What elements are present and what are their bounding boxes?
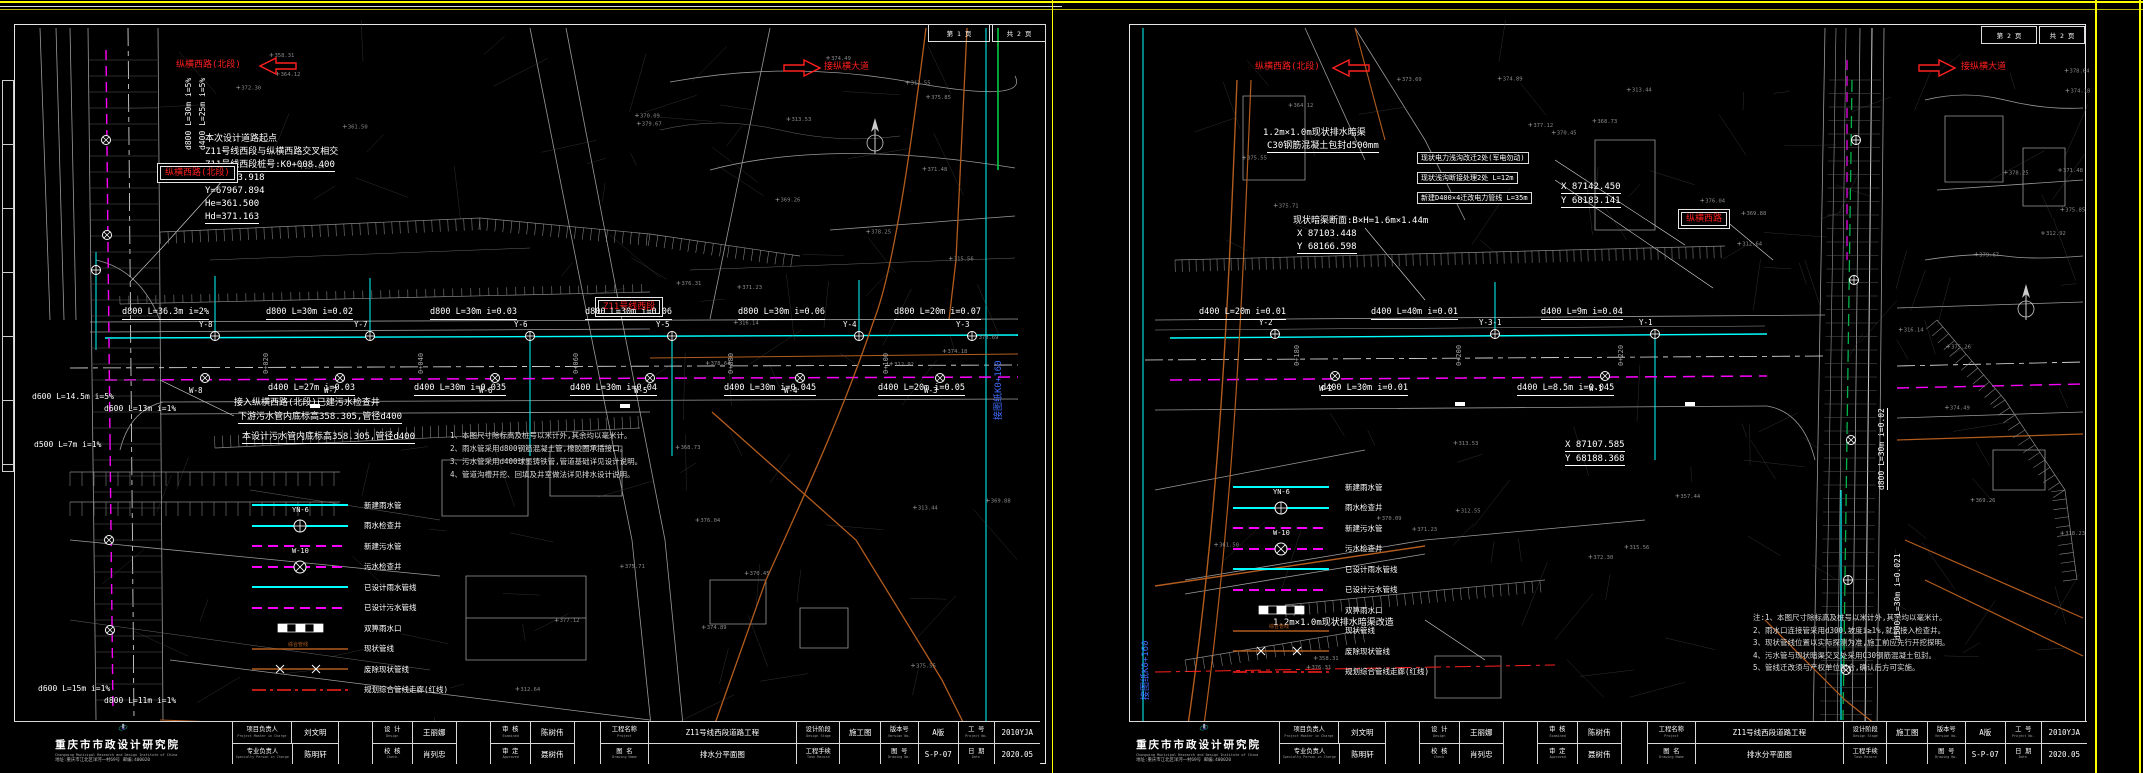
annotation-text: d600 L=15m i=1%: [38, 684, 110, 693]
svg-text:315.56: 315.56: [954, 256, 974, 262]
sewage-well-legend-symbol: [1231, 538, 1331, 556]
legend-label: 双箅雨水口: [364, 623, 402, 634]
leader-lines-right: [1365, 160, 1773, 660]
titleblock-spacer: [1621, 722, 1647, 764]
titleblock-spacer: [1503, 722, 1537, 764]
field-label: 版本号Version No.: [881, 722, 919, 743]
field-label-en: Project No.: [965, 734, 988, 737]
legend-item-designed-sewage: 已设计污水管线: [250, 597, 417, 619]
legend-label: 废除现状管线: [364, 664, 409, 675]
page-number-box: 第 2 页: [1981, 26, 2037, 44]
legend-label: 已设计雨水管线: [1345, 564, 1398, 575]
titleblock-row: 图 号Drawing No.S-P-07: [1928, 743, 2005, 764]
svg-text:361.50: 361.50: [348, 124, 368, 130]
drawing-note: 2、雨水管采用d800钢筋混凝土管,橡胶圈承插接口。: [450, 443, 627, 454]
rain-well-legend-symbol: [250, 515, 350, 533]
red-annotation: 纵横西路(北段): [1255, 62, 1320, 72]
drawing-note: 1、本图尺寸除标高及桩号以米计外,其余均以毫米计。: [450, 430, 632, 441]
titleblock-row: 版本号Version No.A版: [881, 722, 958, 743]
field-label: 工程名称Project: [1648, 722, 1696, 743]
svg-text:Y-1: Y-1: [1639, 318, 1653, 327]
titleblock-field: 项目负责人Project Master in Charge刘文明专业负责人Spe…: [1279, 722, 1385, 764]
annotation-text: d400 L=40m i=0.01: [1371, 308, 1458, 320]
legend-label: 污水检查井: [1345, 543, 1383, 554]
company-cell: 重庆市市政设计研究院Chongqing Municipal Research a…: [1129, 722, 1279, 764]
svg-text:370.45: 370.45: [750, 571, 770, 577]
field-label-en: Project No.: [2012, 734, 2035, 737]
annotation-text: d800 L=30m i=0.06: [738, 308, 825, 320]
svg-text:371.48: 371.48: [927, 167, 947, 173]
legend-item-designed-sewage: 已设计污水管线: [1231, 579, 1398, 601]
field-label-en: Project Master in Charge: [238, 734, 287, 737]
svg-text:375.85: 375.85: [931, 95, 951, 101]
legend-item-sewage-well: W-10污水检查井: [1231, 538, 1383, 560]
inlet-legend-symbol: [1231, 599, 1331, 617]
viewport-frame-top-white: [0, 6, 1062, 7]
field-label-en: Examined: [502, 734, 518, 737]
titleblock-row: 项目负责人Project Master in Charge刘文明: [1280, 722, 1385, 743]
designed-sewage-legend-symbol: [250, 597, 350, 615]
titleblock-spacer: [338, 722, 372, 764]
field-value: 陈明轩: [293, 744, 338, 764]
annotation-text: d800 L=20m i=0.07: [894, 308, 981, 320]
legend-label: 已设计污水管线: [364, 602, 417, 613]
annotation-text: 接入纵横西路(北段)已建污水检查井: [234, 398, 380, 408]
red-annotation: 接纵横大道: [1961, 62, 2006, 72]
titleblock-row: 设计阶段Design Stage施工图: [1844, 722, 1927, 743]
svg-text:375.71: 375.71: [1279, 203, 1299, 209]
direction-arrow-left: [1331, 58, 1371, 78]
field-value: 施工图: [1887, 722, 1927, 743]
field-label-en: Design: [386, 734, 398, 737]
titleblock-field: 版本号Version No.A版图 号Drawing No.S-P-07: [880, 722, 958, 764]
field-label: 工程手续Task Record: [797, 744, 840, 764]
drawing-note: 2、雨水口连接管采用d300,坡度i≥1%,就近接入检查井。: [1753, 625, 1945, 636]
drawing-note: 注:1、本图尺寸除标高及桩号以米计外,其余均以毫米计。: [1753, 612, 1947, 623]
titleblock-field: 审 核Examined陈树伟审 定Approved聂树伟: [1537, 722, 1621, 764]
titleblock-row: 设 计Design王丽娜: [1420, 722, 1503, 743]
field-value: S-P-07: [1966, 744, 2005, 764]
annotation-text: d400 L=25m i=5%: [198, 78, 207, 150]
svg-text:Y-8: Y-8: [199, 320, 213, 329]
legend-well-name: W-10: [292, 547, 309, 555]
field-label-en: Task Record: [1854, 756, 1877, 759]
legend-item-sewage-line: 新建污水管: [1231, 517, 1383, 539]
svg-text:370.09: 370.09: [1382, 516, 1402, 522]
field-value: 施工图: [840, 722, 880, 743]
redline-legend-symbol: [1231, 661, 1331, 679]
legend-item-designed-rain: 已设计雨水管线: [1231, 558, 1398, 580]
field-value: [1887, 744, 1927, 764]
field-value: 王丽娜: [413, 722, 456, 743]
field-label: 审 核Examined: [491, 722, 531, 743]
svg-text:378.64: 378.64: [2070, 68, 2090, 74]
annotation-text: d800 L=30m i=5%: [184, 78, 193, 150]
annotation-text: Y 68166.598: [1297, 242, 1357, 254]
annotation-text: d400 L=20m i=0.05: [878, 384, 965, 396]
field-label: 设计阶段Design Stage: [1844, 722, 1887, 743]
field-value: Z11号线西段道路工程: [1696, 722, 1843, 743]
svg-text:综合管线: 综合管线: [1269, 623, 1289, 630]
legend-label: 新建污水管: [1345, 523, 1383, 534]
annotation-text: d400 L=8.5m i=0.045: [1517, 384, 1614, 396]
svg-text:375.55: 375.55: [1247, 156, 1267, 162]
field-label: 工 号Project No.: [2006, 722, 2042, 743]
svg-text:378.25: 378.25: [2009, 170, 2029, 176]
road-centerline-v: [128, 28, 134, 720]
svg-text:376.04: 376.04: [700, 518, 721, 524]
annotation-text: 1.2m×1.0m现状排水暗渠: [1263, 128, 1366, 138]
field-label: 设计阶段Design Stage: [797, 722, 840, 743]
boxed-annotation: 现状电力浅沟改迁2处(军电勿动): [1417, 152, 1529, 164]
field-label-en: Project Master in Charge: [1285, 734, 1334, 737]
annotation-text: d800 L=30m i=0.02: [266, 308, 353, 320]
road-centerline-h3: [1897, 362, 2083, 366]
field-label-en: Check: [1434, 756, 1444, 759]
legend-item-abolished: 废除现状管线: [250, 658, 409, 680]
field-label: 日 期Date: [2006, 744, 2042, 764]
field-value: 刘文明: [292, 722, 338, 743]
legend-well-name: YN-6: [292, 506, 309, 514]
drawing-note: 3、污水管采用d400球墨铸铁管,管道基础详见设计说明。: [450, 456, 642, 467]
page-total-box: 共 2 页: [992, 24, 1046, 42]
field-value: 排水分平面图: [649, 744, 796, 764]
annotation-text: 0+180: [1293, 345, 1301, 366]
annotation-text: X 87142.450: [1561, 182, 1621, 194]
road-centerline-h: [70, 365, 1018, 368]
legend-item-rain-line: 新建雨水管: [1231, 476, 1383, 498]
viewport-frame-top2: [0, 9, 2143, 10]
direction-arrow-right: [782, 58, 822, 78]
field-label: 项目负责人Project Master in Charge: [233, 722, 292, 743]
field-label: 工程名称Project: [601, 722, 649, 743]
svg-text:371.23: 371.23: [742, 285, 762, 291]
field-label-en: Drawing Name: [612, 756, 637, 759]
abolished-legend-symbol: [250, 658, 350, 676]
svg-text:Y-7: Y-7: [354, 320, 368, 329]
field-label-en: Design Stage: [1853, 734, 1878, 737]
drawing-note: 4、管道沟槽开挖、回填及井室做法详见排水设计说明。: [450, 469, 635, 480]
svg-text:316.14: 316.14: [739, 320, 760, 326]
legend-item-redline: 规划综合管线走廊(红线): [1231, 661, 1429, 683]
legend-label: 雨水检查井: [364, 520, 402, 531]
svg-text:373.69: 373.69: [1402, 77, 1422, 83]
field-label: 校 核Check: [1420, 744, 1460, 764]
annotation-text: 0+200: [1455, 345, 1463, 366]
svg-text:368.73: 368.73: [681, 445, 701, 451]
road-centerline-h2: [1145, 356, 1825, 360]
company-name: 重庆市市政设计研究院: [1136, 737, 1272, 752]
field-label-en: Specialty Person in Charge: [236, 756, 289, 759]
svg-text:368.73: 368.73: [1597, 119, 1617, 125]
svg-text:316.14: 316.14: [1904, 328, 1925, 334]
svg-text:Y-6: Y-6: [514, 320, 528, 329]
drawing-note: 3、现状管线位置以实际探测为准,施工前应先行开挖探明。: [1753, 637, 1950, 648]
company-logo: [1189, 723, 1219, 732]
sewage-well-legend-symbol: [250, 556, 350, 574]
field-label: 图 号Drawing No.: [1928, 744, 1966, 764]
legend-well-name: YN-6: [1273, 488, 1290, 496]
annotation-text: 0+220: [1617, 345, 1625, 366]
field-label-en: Examined: [1549, 734, 1565, 737]
field-value: 刘文明: [1339, 722, 1385, 743]
svg-text:318.23: 318.23: [2065, 531, 2085, 537]
annotation-text: 0+060: [572, 353, 580, 374]
legend-item-inlet: 双箅雨水口: [1231, 599, 1383, 621]
field-label: 图 名Drawing Name: [1648, 744, 1696, 764]
svg-text:315.56: 315.56: [1629, 545, 1649, 551]
inlet-legend-symbol: [250, 617, 350, 635]
existing-legend-symbol: 综合管线: [1231, 620, 1331, 638]
field-label-en: Design Stage: [806, 734, 831, 737]
legend-item-sewage-well: W-10污水检查井: [250, 556, 402, 578]
titleblock-field: 设 计Design王丽娜校 核Check肖列忠: [1419, 722, 1503, 764]
svg-text:综合管线: 综合管线: [288, 641, 308, 648]
svg-text:372.30: 372.30: [241, 86, 261, 92]
annotation-text: 0+040: [417, 353, 425, 374]
titleblock-field: 工程名称ProjectZ11号线西段道路工程图 名Drawing Name排水分…: [600, 722, 796, 764]
field-value: 2020.05: [995, 744, 1040, 764]
annotation-text: He=361.500: [205, 199, 259, 209]
legend-label: 新建雨水管: [364, 500, 402, 511]
annotation-text: Y 68188.368: [1565, 454, 1625, 466]
annotation-text: Y 68183.141: [1561, 196, 1621, 208]
existing-legend-symbol: 综合管线: [250, 638, 350, 656]
field-label: 设 计Design: [1420, 722, 1460, 743]
field-label: 校 核Check: [373, 744, 413, 764]
legend-label: 规划综合管线走廊(红线): [364, 684, 448, 695]
annotation-text: d600 L=14.5m i=5%: [32, 392, 114, 401]
field-value: S-P-07: [919, 744, 958, 764]
legend-item-rain-line: 新建雨水管: [250, 494, 402, 516]
titleblock-row: 校 核Check肖列忠: [373, 743, 456, 764]
legend-label: 规划综合管线走廊(红线): [1345, 666, 1429, 677]
annotation-text: 本次设计道路起点: [205, 134, 277, 144]
field-label-en: Specialty Person in Charge: [1283, 756, 1336, 759]
svg-text:374.49: 374.49: [831, 56, 851, 62]
annotation-text: 0+100: [882, 353, 890, 374]
field-label-en: Approved: [1549, 756, 1565, 759]
svg-text:370.45: 370.45: [1557, 131, 1577, 137]
field-label: 项目负责人Project Master in Charge: [1280, 722, 1339, 743]
titleblock-spacer: [1385, 722, 1419, 764]
titleblock-row: 工程名称ProjectZ11号线西段道路工程: [1648, 722, 1843, 743]
field-label-en: Drawing No.: [1935, 756, 1958, 759]
legend-label: 现状管线: [364, 643, 394, 654]
viewport-frame-top: [0, 1, 2143, 3]
annotation-text: 本设计污水管内底标高358.305,管径d400: [242, 432, 415, 444]
company-logo: [108, 723, 138, 732]
legend-item-rain-well: YN-6雨水检查井: [250, 515, 402, 537]
field-label-en: Check: [387, 756, 397, 759]
field-label-en: Project: [1664, 734, 1678, 737]
svg-text:312.92: 312.92: [894, 362, 914, 368]
legend-label: 已设计雨水管线: [364, 582, 417, 593]
annotation-text: d400 L=30m i=0.04: [570, 384, 657, 396]
annotation-text: d400 L=30m i=0.045: [724, 384, 816, 396]
annotation-text: 0+080: [727, 353, 735, 374]
legend-item-inlet: 双箅雨水口: [250, 617, 402, 639]
field-label: 专业负责人Specialty Person in Charge: [233, 744, 293, 764]
north-arrow-icon: [2013, 282, 2039, 324]
svg-text:Y-3-1: Y-3-1: [1479, 318, 1502, 327]
annotation-text: X 87107.585: [1565, 440, 1625, 452]
field-label: 版本号Version No.: [1928, 722, 1966, 743]
annotation-text: 接图纸K0+160: [1141, 640, 1151, 700]
title-block: 重庆市市政设计研究院Chongqing Municipal Research a…: [14, 721, 1040, 764]
svg-text:376.04: 376.04: [1705, 198, 1726, 204]
field-value: 2010YJA: [995, 722, 1040, 743]
company-name-en: Chongqing Municipal Research and Design …: [1136, 752, 1258, 757]
field-label-en: Drawing Name: [1659, 756, 1684, 759]
field-label: 设 计Design: [373, 722, 413, 743]
svg-text:Y-4: Y-4: [843, 320, 857, 329]
road-name-label: 纵横西路(北段): [160, 166, 235, 180]
legend-label: 新建污水管: [364, 541, 402, 552]
titleblock-row: 图 名Drawing Name排水分平面图: [601, 743, 796, 764]
svg-text:W-8: W-8: [189, 386, 203, 395]
annotation-text: Hd=371.163: [205, 212, 259, 224]
svg-text:379.67: 379.67: [1979, 252, 1999, 258]
company-name-en: Chongqing Municipal Research and Design …: [55, 752, 177, 757]
titleblock-row: 工程名称ProjectZ11号线西段道路工程: [601, 722, 796, 743]
annotation-text: d800 L=30m i=0.02: [1877, 408, 1888, 490]
field-value: 2020.05: [2042, 744, 2087, 764]
titleblock-field: 工 号Project No.2010YJA日 期Date2020.05: [958, 722, 1040, 764]
annotation-text: C30钢筋混凝土包封d500mm: [1267, 141, 1379, 153]
svg-text:312.92: 312.92: [2046, 231, 2066, 237]
field-label-en: Approved: [502, 756, 518, 759]
redline-legend-symbol: [250, 679, 350, 697]
field-label: 审 核Examined: [1538, 722, 1578, 743]
company-text: 重庆市市政设计研究院Chongqing Municipal Research a…: [55, 737, 191, 763]
north-arrow-icon: [862, 116, 888, 158]
titleblock-field: 项目负责人Project Master in Charge刘文明专业负责人Spe…: [232, 722, 338, 764]
field-label: 日 期Date: [959, 744, 995, 764]
titleblock-row: 工 号Project No.2010YJA: [2006, 722, 2087, 743]
svg-text:312.64: 312.64: [520, 687, 541, 693]
company-name: 重庆市市政设计研究院: [55, 737, 191, 752]
svg-text:313.53: 313.53: [1458, 441, 1478, 447]
legend-label: 双箅雨水口: [1345, 605, 1383, 616]
annotation-text: d400 L=30m i=0.01: [1321, 384, 1408, 396]
viewport-frame-right2: [2139, 0, 2141, 773]
field-label: 审 定Approved: [1538, 744, 1578, 764]
field-label: 工 号Project No.: [959, 722, 995, 743]
viewport-frame-mid: [1052, 0, 1053, 773]
titleblock-row: 工程手续Task Record: [1844, 743, 1927, 764]
annotation-text: Z11号线西段与纵横西路交叉相交: [205, 147, 338, 157]
legend-label: 现状管线: [1345, 625, 1375, 636]
legend-item-abolished: 废除现状管线: [1231, 640, 1390, 662]
titleblock-row: 设 计Design王丽娜: [373, 722, 456, 743]
field-label: 图 名Drawing Name: [601, 744, 649, 764]
field-label-en: Task Record: [807, 756, 830, 759]
titleblock-row: 专业负责人Specialty Person in Charge陈明轩: [233, 743, 338, 764]
legend-item-rain-well: YN-6雨水检查井: [1231, 497, 1383, 519]
annotation-text: d400 L=30m i=0.035: [414, 384, 506, 396]
field-label-en: Date: [972, 756, 980, 759]
annotation-text: X 87103.448: [1297, 229, 1357, 239]
field-value: 王丽娜: [1460, 722, 1503, 743]
svg-text:374.89: 374.89: [1503, 76, 1523, 82]
abolished-legend-symbol: [1231, 640, 1331, 658]
svg-text:370.09: 370.09: [640, 113, 660, 119]
storm-inlets-right: [1455, 402, 1695, 406]
drawing-note: 4、污水管与现状暗渠交叉处采用C30钢筋混凝土包封。: [1753, 650, 1936, 661]
viewport-frame-right: [2095, 0, 2097, 773]
field-label: 专业负责人Specialty Person in Charge: [1280, 744, 1340, 764]
field-label-en: Drawing No.: [888, 756, 911, 759]
svg-text:379.67: 379.67: [642, 121, 662, 127]
page-total-box: 共 2 页: [2039, 26, 2085, 44]
annotation-text: d400 L=9m i=0.04: [1541, 308, 1623, 320]
annotation-text: Y=67967.894: [205, 186, 265, 196]
svg-text:375.71: 375.71: [625, 564, 645, 570]
svg-text:369.26: 369.26: [1976, 498, 1996, 504]
svg-text:312.55: 312.55: [911, 81, 931, 87]
cad-drawing-canvas: 379.67371.48369.26375.85378.25374.49376.…: [0, 0, 2143, 773]
sheet-right: 364.12368.73375.55376.04312.64313.44374.…: [1125, 20, 2090, 768]
titleblock-row: 审 核Examined陈树伟: [491, 722, 574, 743]
title-block: 重庆市市政设计研究院Chongqing Municipal Research a…: [1129, 721, 2087, 764]
svg-text:378.25: 378.25: [871, 230, 891, 236]
direction-arrow-right: [1917, 58, 1957, 78]
company-address: 地址:重庆市江北区洋河一村69号 邮编:400020: [55, 757, 191, 763]
designed-rain-legend-symbol: [250, 576, 350, 594]
svg-text:374.18: 374.18: [2070, 89, 2090, 95]
svg-text:374.18: 374.18: [947, 349, 967, 355]
svg-text:374.49: 374.49: [1950, 405, 1970, 411]
annotation-text: d800 L=30m i=0.06: [585, 308, 672, 320]
field-value: 陈明轩: [1340, 744, 1385, 764]
svg-text:369.88: 369.88: [1746, 211, 1766, 217]
titleblock-field: 工 号Project No.2010YJA日 期Date2020.05: [2005, 722, 2087, 764]
page-number-box: 第 1 页: [928, 24, 990, 42]
titleblock-row: 审 定Approved聂树伟: [1538, 743, 1621, 764]
field-label: 审 定Approved: [491, 744, 531, 764]
titleblock-field: 版本号Version No.A版图 号Drawing No.S-P-07: [1927, 722, 2005, 764]
titleblock-row: 版本号Version No.A版: [1928, 722, 2005, 743]
company-cell: 重庆市市政设计研究院Chongqing Municipal Research a…: [14, 722, 232, 764]
svg-text:371.23: 371.23: [1417, 527, 1437, 533]
annotation-text: d800 L=30m i=0.03: [430, 308, 517, 320]
svg-text:377.12: 377.12: [1533, 123, 1553, 129]
titleblock-field: 设计阶段Design Stage施工图工程手续Task Record: [796, 722, 880, 764]
drawing-note: 5、管线迁改须与产权单位配合,确认后方可实施。: [1753, 662, 1920, 673]
legend-label: 雨水检查井: [1345, 502, 1383, 513]
annotation-text: d600 L=13m i=1%: [104, 404, 176, 413]
svg-text:375.26: 375.26: [1951, 344, 1971, 350]
titleblock-row: 专业负责人Specialty Person in Charge陈明轩: [1280, 743, 1385, 764]
legend-item-redline: 规划综合管线走廊(红线): [250, 679, 448, 701]
road-name-label: 纵横西路: [1681, 212, 1727, 226]
titleblock-row: 图 号Drawing No.S-P-07: [881, 743, 958, 764]
rain-well-legend-symbol: [1231, 497, 1331, 515]
titleblock-field: 审 核Examined陈树伟审 定Approved聂树伟: [490, 722, 574, 764]
titleblock-row: 日 期Date2020.05: [959, 743, 1040, 764]
titleblock-row: 日 期Date2020.05: [2006, 743, 2087, 764]
svg-text:357.44: 357.44: [1680, 494, 1701, 500]
svg-text:312.55: 312.55: [1461, 508, 1481, 514]
legend-item-existing: 综合管线现状管线: [250, 638, 394, 660]
legend-item-designed-rain: 已设计雨水管线: [250, 576, 417, 598]
field-label: 工程手续Task Record: [1844, 744, 1887, 764]
field-value: 陈树伟: [1578, 722, 1621, 743]
svg-text:313.44: 313.44: [918, 505, 939, 511]
titleblock-field: 设计阶段Design Stage施工图工程手续Task Record: [1843, 722, 1927, 764]
svg-text:Y-3: Y-3: [956, 320, 970, 329]
